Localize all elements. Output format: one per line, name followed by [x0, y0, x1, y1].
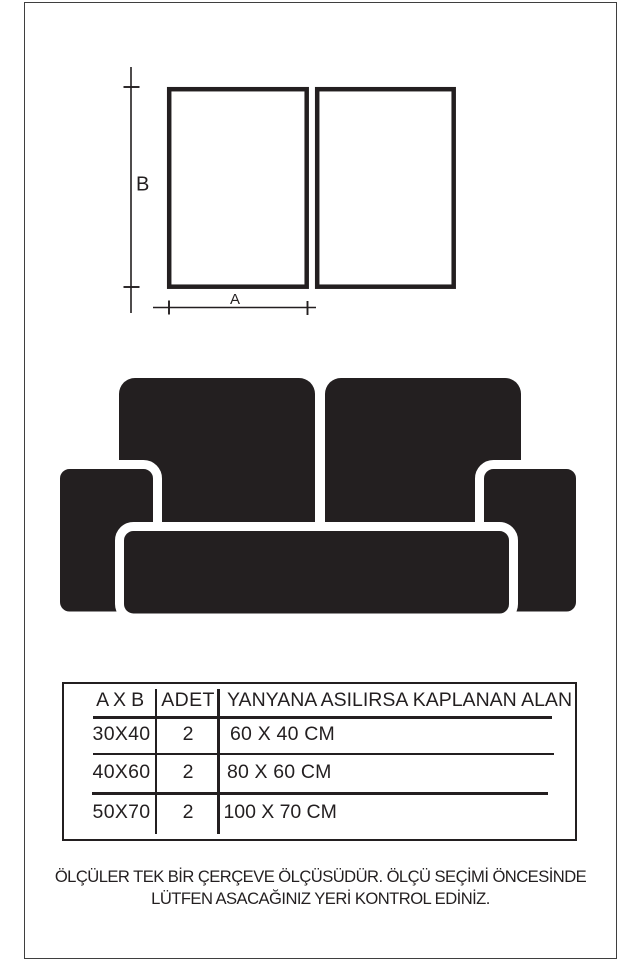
svg-text:A: A: [230, 291, 240, 308]
svg-text:B: B: [136, 174, 149, 196]
